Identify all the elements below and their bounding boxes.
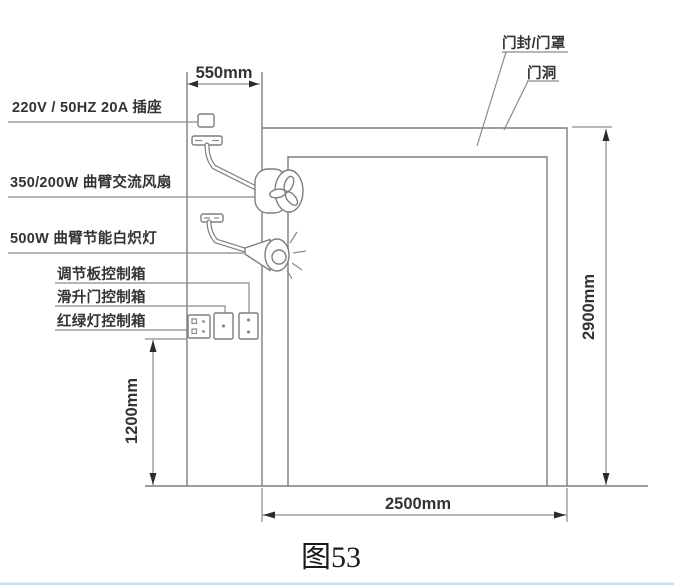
door-callouts: 门封/门罩 门洞 <box>477 34 568 146</box>
socket-group: 220V / 50HZ 20A 插座 <box>8 98 214 127</box>
light-rays-icon <box>287 232 306 279</box>
arrow-up-icon <box>150 340 157 352</box>
figure-caption: 图53 <box>301 541 361 574</box>
dim-2500-label: 2500mm <box>385 495 451 513</box>
door-seal-rectangle <box>288 157 547 486</box>
door-installation-drawing: 550mm 2900mm 2500mm 1200mm 门封/门罩 门洞 220V <box>0 0 674 585</box>
door-opening-label: 门洞 <box>527 64 557 82</box>
arrow-left-icon <box>263 512 275 519</box>
socket-icon <box>198 114 214 127</box>
traffic-light-box-label: 红绿灯控制箱 <box>57 312 146 330</box>
regulator-box-label: 调节板控制箱 <box>57 265 146 283</box>
fan-group: 350/200W 曲臂交流风扇 <box>8 136 303 213</box>
frame-lines <box>145 72 648 486</box>
dim-550-label: 550mm <box>196 64 253 82</box>
arrow-down-icon <box>603 473 610 485</box>
door-seal-label: 门封/门罩 <box>502 34 566 52</box>
dim-2900-label: 2900mm <box>580 274 598 340</box>
figure-53-diagram: 550mm 2900mm 2500mm 1200mm 门封/门罩 门洞 220V <box>0 0 674 585</box>
control-boxes-group: 调节板控制箱 滑升门控制箱 红绿灯控制箱 <box>55 265 258 339</box>
dimension-550: 550mm <box>187 64 260 88</box>
regulator-control-box <box>239 313 258 339</box>
dimension-1200: 1200mm <box>123 339 187 485</box>
dim-1200-label: 1200mm <box>123 378 141 444</box>
sliding-door-box-label: 滑升门控制箱 <box>57 288 146 306</box>
door-opening-top-right-edge <box>262 128 567 486</box>
dimension-2500: 2500mm <box>262 488 567 522</box>
arrow-right-icon <box>554 512 566 519</box>
lamp-label: 500W 曲臂节能白炽灯 <box>10 229 157 247</box>
traffic-light-control-box <box>188 315 210 338</box>
door-opening-leader <box>504 81 528 130</box>
door-seal-leader <box>477 52 506 146</box>
dimension-2900: 2900mm <box>572 127 612 485</box>
arrow-down-icon <box>150 473 157 485</box>
sliding-door-box-leader <box>55 306 225 313</box>
socket-label: 220V / 50HZ 20A 插座 <box>12 98 162 116</box>
lamp-arm <box>209 222 248 251</box>
fan-label: 350/200W 曲臂交流风扇 <box>10 173 172 191</box>
arrow-up-icon <box>603 129 610 141</box>
lamp-bulb-center <box>272 250 286 264</box>
